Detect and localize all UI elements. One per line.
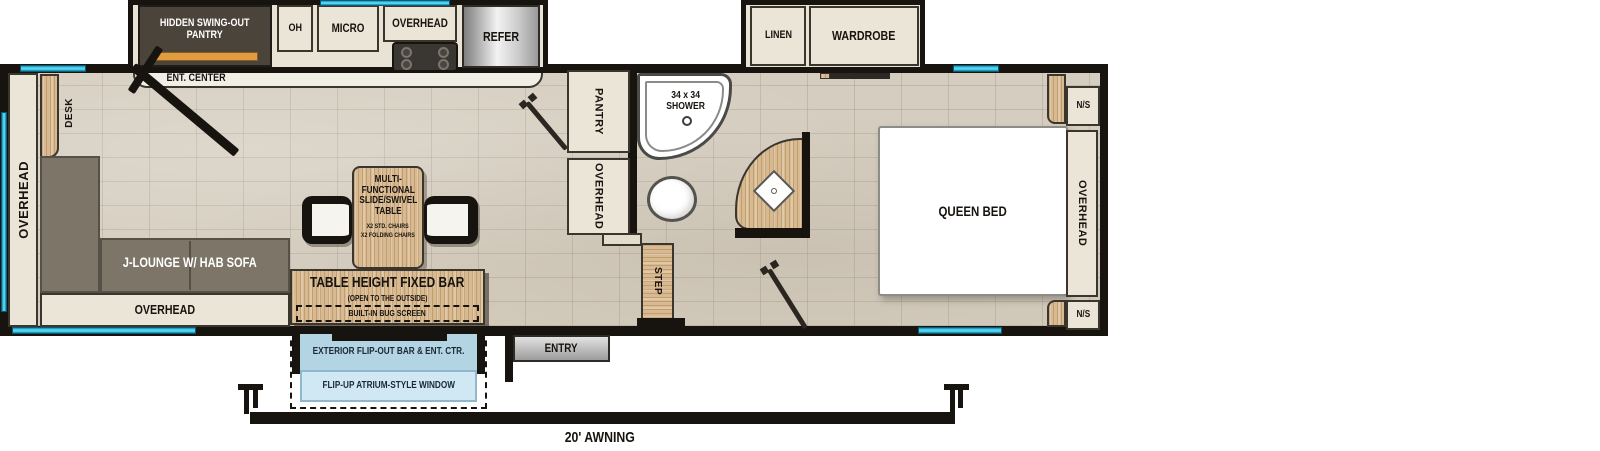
- shower-label: 34 x 34 SHOWER: [667, 90, 706, 112]
- atrium-window: FLIP-UP ATRIUM-STYLE WINDOW: [300, 370, 477, 402]
- chairs-std-label-box: X2 STD. CHAIRS: [353, 224, 423, 231]
- oh-label: OH: [288, 23, 302, 35]
- sofa-label-box: J-LOUNGE W/ HAB SOFA: [100, 246, 280, 280]
- fixed-bar-label-box: TABLE HEIGHT FIXED BAR: [292, 274, 483, 294]
- vanity-wall-horizontal: [735, 228, 810, 238]
- living-bottom-window: [12, 327, 196, 334]
- nightstand-bottom-label: N/S: [1076, 310, 1090, 321]
- bar-note-label: (OPEN TO THE OUTSIDE): [348, 295, 428, 303]
- refer-label: REFER: [483, 30, 519, 44]
- wardrobe: WARDROBE: [809, 6, 919, 66]
- sofa-overhead-cabinet: OVERHEAD: [40, 293, 290, 327]
- pantry-shelf-bar: [152, 52, 258, 61]
- dinette-chair-left: [302, 196, 352, 244]
- wardrobe-label: WARDROBE: [832, 29, 895, 43]
- nightstand-top: N/S: [1066, 86, 1100, 126]
- awning-bracket-left-leg2: [253, 390, 258, 408]
- kitchen-slideout-window: [320, 0, 450, 6]
- headboard-trim-bottom: [1047, 300, 1066, 327]
- microwave: MICRO: [317, 5, 379, 52]
- oh-cabinet: OH: [277, 5, 313, 52]
- rv-floorplan: HIDDEN SWING-OUT PANTRY OH MICRO OVERHEA…: [0, 0, 1600, 451]
- ent-center-label: ENT. CENTER: [166, 73, 225, 85]
- step-base: [637, 318, 685, 327]
- awning-label: 20' AWNING: [565, 430, 635, 446]
- step-wall-strip: [602, 233, 642, 246]
- right-wall: [1100, 64, 1108, 336]
- pantry-cabinet: PANTRY: [567, 70, 630, 153]
- linen-closet: LINEN: [750, 6, 806, 66]
- sofa-chaise-arm: [40, 156, 100, 293]
- kitchen-overhead-cabinet: OVERHEAD: [383, 5, 457, 42]
- micro-label: MICRO: [332, 22, 365, 35]
- mid-overhead-label: OVERHEAD: [593, 163, 605, 229]
- sink-drain: [770, 187, 778, 195]
- flip-out-top-bar: [332, 334, 447, 341]
- entry-label: ENTRY: [545, 342, 578, 355]
- left-wall-overhead-cabinet: OVERHEAD: [8, 73, 38, 327]
- awning-bracket-left-leg1: [244, 390, 249, 414]
- chairs-folding-label: X2 FOLDING CHAIRS: [361, 233, 415, 240]
- linen-label: LINEN: [764, 30, 791, 42]
- nightstand-bottom: N/S: [1066, 300, 1100, 330]
- awning-bracket-right-leg2: [958, 390, 963, 408]
- wardrobe-sill: [830, 73, 890, 79]
- awning-label-box: 20' AWNING: [520, 428, 680, 448]
- vanity-sink: [753, 170, 795, 212]
- shower-label-box: 34 x 34 SHOWER: [646, 86, 726, 116]
- awning-bracket-right-leg1: [950, 390, 955, 414]
- awning-bracket-right-bar: [944, 384, 969, 390]
- toilet: [647, 176, 697, 222]
- refrigerator: REFER: [462, 5, 540, 68]
- bedroom-bottom-window: [918, 327, 1002, 334]
- sofa-overhead-label: OVERHEAD: [135, 303, 195, 317]
- exterior-bar-label: EXTERIOR FLIP-OUT BAR & ENT. CTR.: [313, 347, 465, 358]
- queen-bed: QUEEN BED: [878, 126, 1068, 296]
- bug-screen-label: BUILT-IN BUG SCREEN: [349, 309, 426, 318]
- entry-door: ENTRY: [513, 335, 610, 362]
- hidden-swing-out-pantry-label: HIDDEN SWING-OUT PANTRY: [160, 18, 250, 41]
- wardrobe-sill-trim: [820, 73, 830, 79]
- dinette-chair-right: [424, 196, 478, 244]
- chairs-folding-label-box: X2 FOLDING CHAIRS: [353, 233, 423, 240]
- bedroom-top-window: [953, 65, 999, 72]
- awning-line: [250, 412, 955, 424]
- awning-bracket-left-bar: [238, 384, 263, 390]
- atrium-window-label: FLIP-UP ATRIUM-STYLE WINDOW: [322, 381, 454, 392]
- vanity-wall-vertical: [802, 132, 810, 234]
- chairs-std-label: X2 STD. CHAIRS: [367, 224, 409, 231]
- desk-label-box: DESK: [56, 88, 82, 138]
- cooktop: [392, 42, 458, 72]
- entry-step: STEP: [641, 243, 674, 320]
- table-label: MULTI- FUNCTIONAL SLIDE/SWIVEL TABLE: [359, 175, 417, 217]
- headboard-trim-top: [1047, 74, 1066, 124]
- living-side-window: [1, 112, 7, 312]
- fixed-bar: TABLE HEIGHT FIXED BAR (OPEN TO THE OUTS…: [290, 269, 485, 325]
- kitchen-overhead-label: OVERHEAD: [392, 17, 448, 30]
- left-overhead-label: OVERHEAD: [16, 161, 31, 239]
- dinette-table: MULTI- FUNCTIONAL SLIDE/SWIVEL TABLE X2 …: [352, 166, 424, 269]
- living-top-window: [20, 65, 86, 72]
- step-label: STEP: [652, 267, 663, 295]
- mid-overhead-cabinet: OVERHEAD: [567, 158, 630, 235]
- queen-bed-label: QUEEN BED: [939, 204, 1007, 219]
- bedroom-overhead-cabinet: OVERHEAD: [1066, 130, 1098, 297]
- table-label-box: MULTI- FUNCTIONAL SLIDE/SWIVEL TABLE: [353, 175, 423, 217]
- pantry-label: PANTRY: [593, 88, 605, 135]
- bug-screen-box: BUILT-IN BUG SCREEN: [296, 305, 479, 322]
- entry-wall-stub: [505, 330, 513, 382]
- shower-drain: [682, 116, 692, 126]
- sofa-label: J-LOUNGE W/ HAB SOFA: [123, 256, 257, 270]
- fixed-bar-label: TABLE HEIGHT FIXED BAR: [310, 276, 464, 291]
- flip-out-bracket-right: [477, 333, 485, 374]
- desk-label: DESK: [64, 98, 75, 128]
- flip-out-bracket-left: [292, 333, 300, 374]
- bedroom-overhead-label: OVERHEAD: [1076, 180, 1088, 246]
- nightstand-top-label: N/S: [1076, 101, 1090, 112]
- bar-note-box: (OPEN TO THE OUTSIDE): [292, 294, 483, 304]
